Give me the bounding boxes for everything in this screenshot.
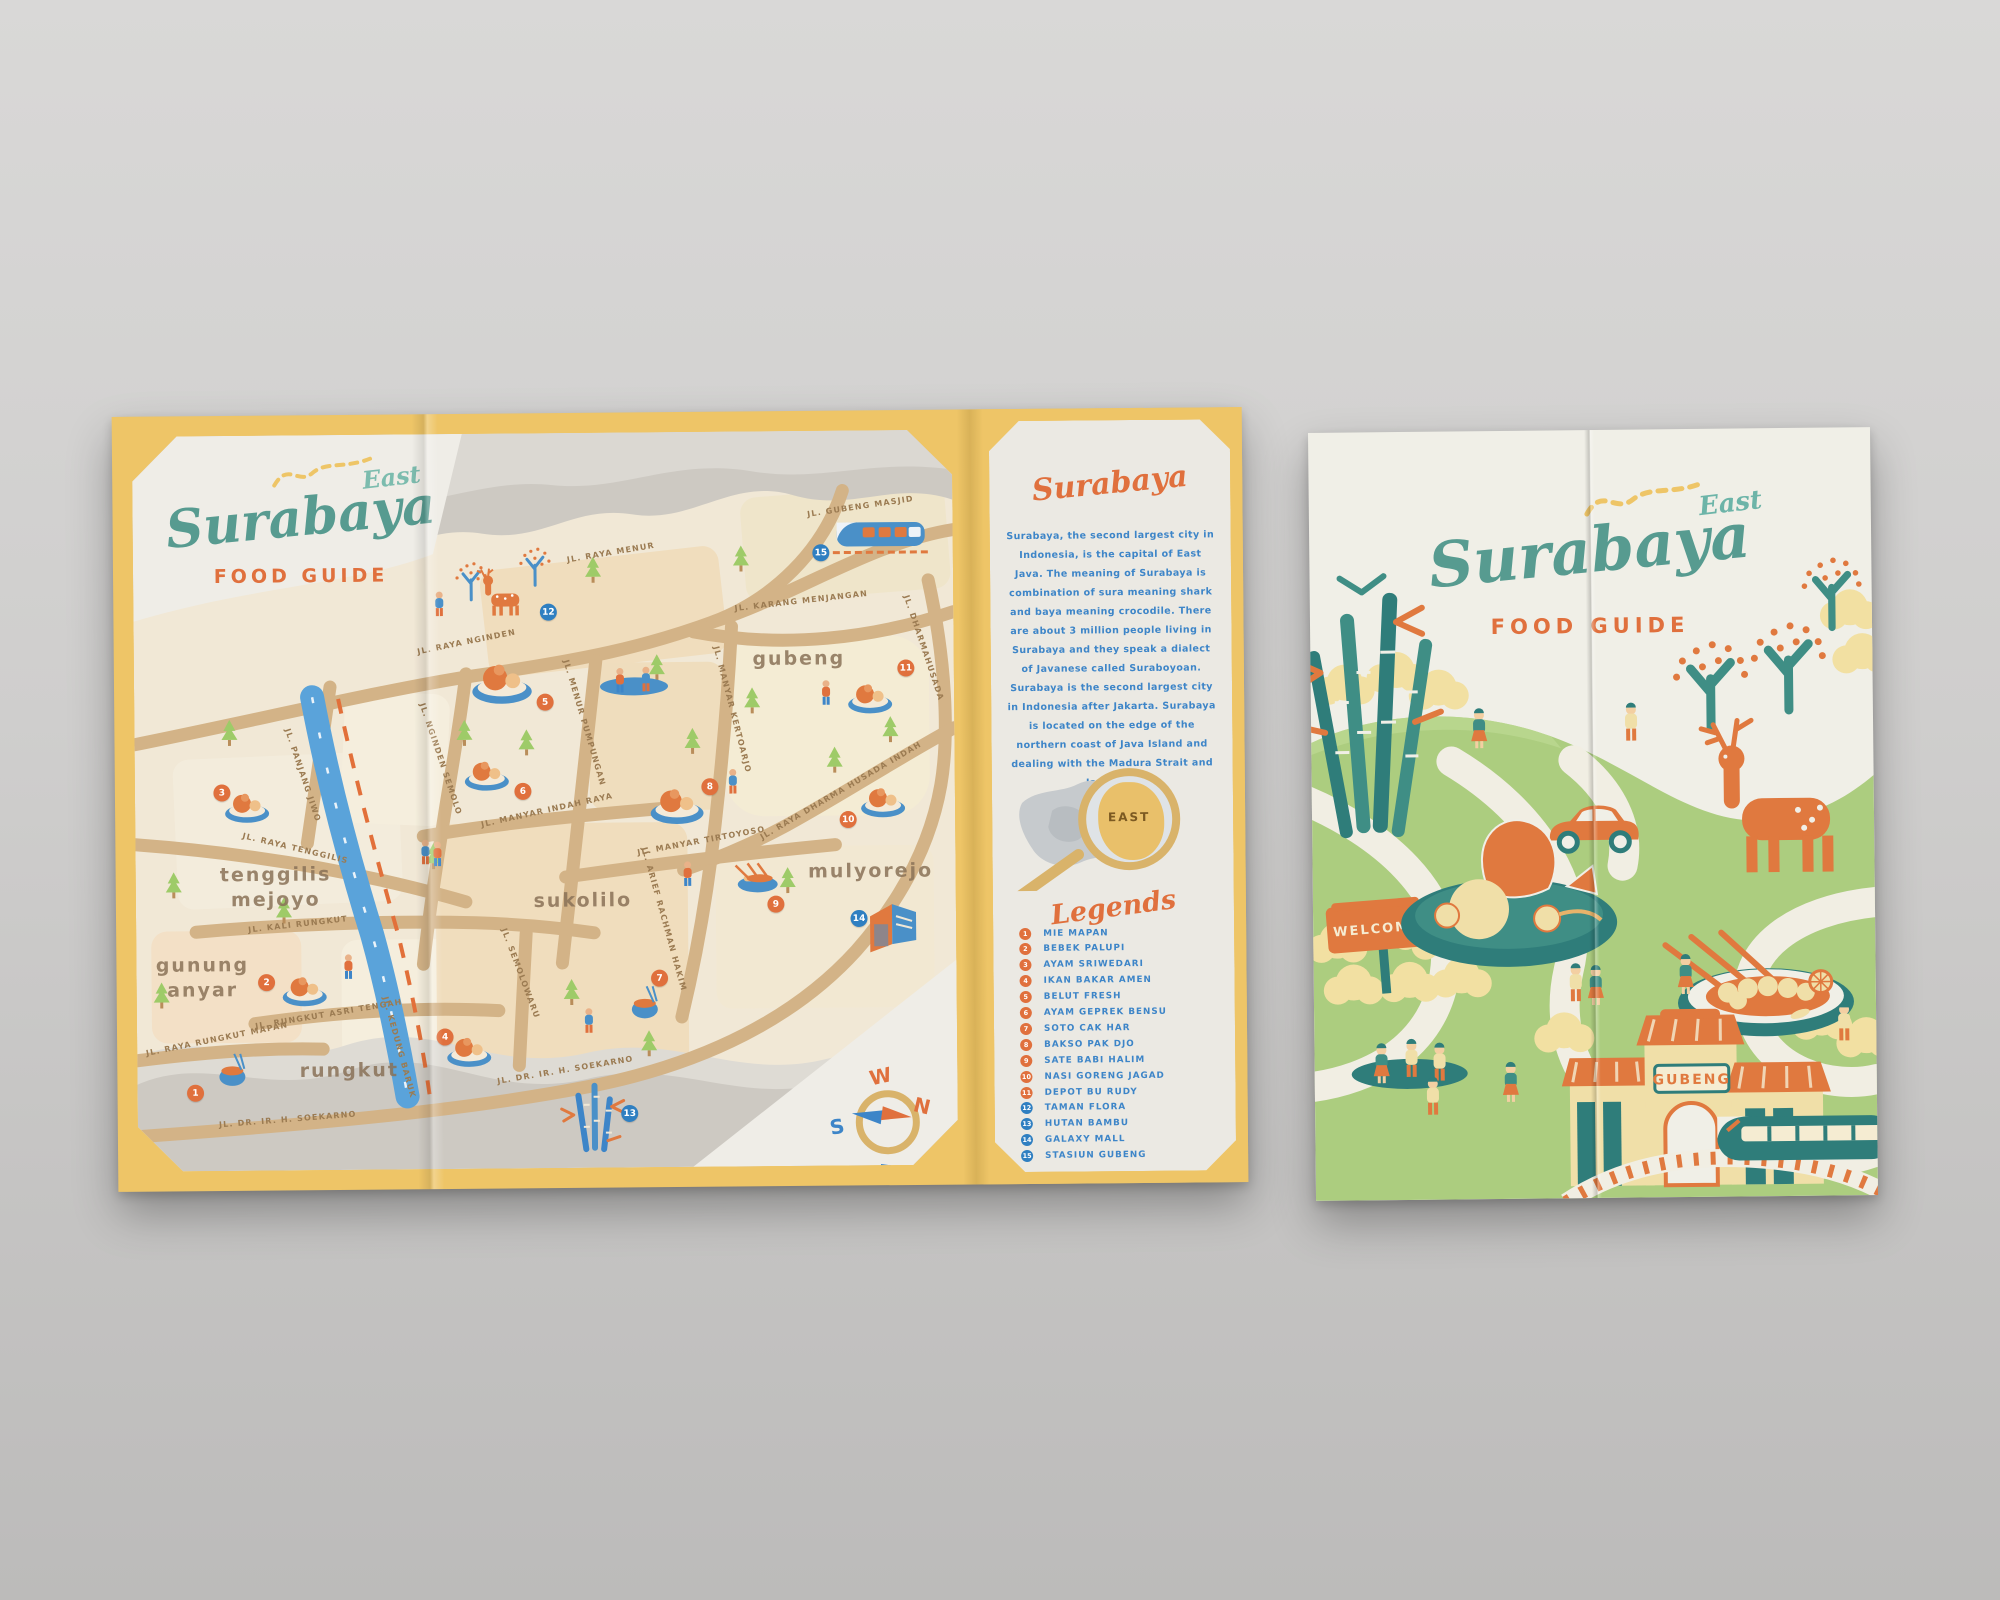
legend-number: 1 <box>1019 927 1031 939</box>
brochure-cover: WELCOME <box>1308 427 1878 1201</box>
legend-item: 6AYAM GEPREK BENSU <box>1020 1004 1167 1020</box>
map-marker-5: 5 <box>537 694 554 711</box>
district-label: mulyorejo <box>786 858 956 884</box>
legend-number: 6 <box>1020 1007 1032 1019</box>
legend-item: 10NASI GORENG JAGAD <box>1020 1068 1165 1084</box>
legend-item: 5BELUT FRESH <box>1020 989 1122 1005</box>
legend-label: BAKSO PAK DJO <box>1044 1039 1135 1050</box>
train-icon <box>1717 1115 1878 1161</box>
legend-number: 15 <box>1021 1150 1033 1162</box>
legend-number: 10 <box>1020 1071 1032 1083</box>
legend-number: 13 <box>1021 1118 1033 1130</box>
legend-list: 1MIE MAPAN2BEBEK PALUPI3AYAM SRIWEDARI4I… <box>989 419 1230 421</box>
legend-item: 11DEPOT BU RUDY <box>1021 1084 1138 1100</box>
legend-item: 13HUTAN BAMBU <box>1021 1116 1129 1132</box>
info-panel-inner: Surabaya Surabaya, the second largest ci… <box>989 419 1237 1172</box>
back-title: Surabaya <box>158 474 443 562</box>
legend-label: IKAN BAKAR AMEN <box>1044 975 1152 986</box>
district-label: sukolilo <box>503 888 663 914</box>
compass-east: E <box>877 1159 894 1185</box>
legend-label: SATE BABI HALIM <box>1044 1055 1145 1066</box>
legend-label: HUTAN BAMBU <box>1045 1118 1129 1129</box>
brochure-back-title: East Surabaya FOOD GUIDE <box>150 452 451 625</box>
map-marker-15: 15 <box>812 544 829 561</box>
map-marker-12: 12 <box>540 604 557 621</box>
legend-item: 3AYAM SRIWEDARI <box>1019 957 1144 973</box>
info-panel: Surabaya Surabaya, the second largest ci… <box>977 407 1249 1184</box>
map-marker-2: 2 <box>258 974 275 991</box>
legend-item: 2BEBEK PALUPI <box>1019 941 1125 957</box>
legend-number: 2 <box>1019 943 1031 955</box>
legend-label: TAMAN FLORA <box>1045 1103 1127 1114</box>
magnifier-icon: EAST <box>1078 768 1181 871</box>
map-marker-11: 11 <box>897 659 914 676</box>
district-label: gunung anyar <box>147 953 257 1003</box>
map-marker-9: 9 <box>767 896 784 913</box>
map-marker-3: 3 <box>213 784 230 801</box>
legend-label: BEBEK PALUPI <box>1043 944 1125 955</box>
map-marker-6: 6 <box>514 783 531 800</box>
map-marker-13: 13 <box>621 1105 638 1122</box>
legend-item: 14GALAXY MALL <box>1021 1132 1126 1148</box>
legend-item: 8BAKSO PAK DJO <box>1020 1036 1135 1052</box>
east-label: EAST <box>1086 810 1172 825</box>
legend-label: GALAXY MALL <box>1045 1134 1126 1145</box>
legend-item: 4IKAN BAKAR AMEN <box>1020 973 1152 989</box>
legend-number: 3 <box>1019 959 1031 971</box>
map-marker-1: 1 <box>187 1085 204 1102</box>
legend-number: 12 <box>1021 1102 1033 1114</box>
compass: W N S E <box>837 1072 924 1159</box>
map-marker-8: 8 <box>701 778 718 795</box>
legend-label: STASIUN GUBENG <box>1045 1150 1146 1161</box>
legend-label: AYAM GEPREK BENSU <box>1044 1007 1167 1018</box>
legend-number: 4 <box>1020 975 1032 987</box>
legend-label: AYAM SRIWEDARI <box>1043 959 1143 970</box>
district-label: gubeng <box>719 646 879 672</box>
legend-label: MIE MAPAN <box>1043 928 1109 939</box>
legend-number: 7 <box>1020 1023 1032 1035</box>
legend-label: BELUT FRESH <box>1044 991 1122 1002</box>
legend-item: 15STASIUN GUBENG <box>1021 1148 1146 1164</box>
legend-item: 7SOTO CAK HAR <box>1020 1020 1131 1036</box>
legend-item: 9SATE BABI HALIM <box>1020 1052 1145 1068</box>
legend-number: 5 <box>1020 991 1032 1003</box>
legend-number: 8 <box>1020 1039 1032 1051</box>
map-marker-14: 14 <box>850 910 867 927</box>
back-subtitle: FOOD GUIDE <box>151 564 451 589</box>
station-sign-text: GUBENG <box>1653 1072 1731 1089</box>
east-java-map: EAST <box>992 749 1234 891</box>
legend-label: DEPOT BU RUDY <box>1045 1087 1138 1098</box>
compass-south: S <box>828 1114 847 1140</box>
info-heading: Surabaya <box>988 455 1231 513</box>
map-marker-4: 4 <box>436 1028 453 1045</box>
map-marker-10: 10 <box>840 811 857 828</box>
map-panel: East Surabaya FOOD GUIDE tenggilis mejoy… <box>132 430 958 1172</box>
district-label: tenggilis mejoyo <box>211 862 341 913</box>
legend-label: SOTO CAK HAR <box>1044 1023 1131 1034</box>
map-marker-7: 7 <box>651 970 668 987</box>
legend-number: 14 <box>1021 1134 1033 1146</box>
legend-label: NASI GORENG JAGAD <box>1044 1070 1164 1081</box>
legend-number: 9 <box>1020 1055 1032 1067</box>
legend-item: 1MIE MAPAN <box>1019 925 1109 941</box>
legend-item: 12TAMAN FLORA <box>1021 1100 1127 1116</box>
legend-number: 11 <box>1021 1086 1033 1098</box>
open-brochure-spread: East Surabaya FOOD GUIDE tenggilis mejoy… <box>112 407 1249 1192</box>
